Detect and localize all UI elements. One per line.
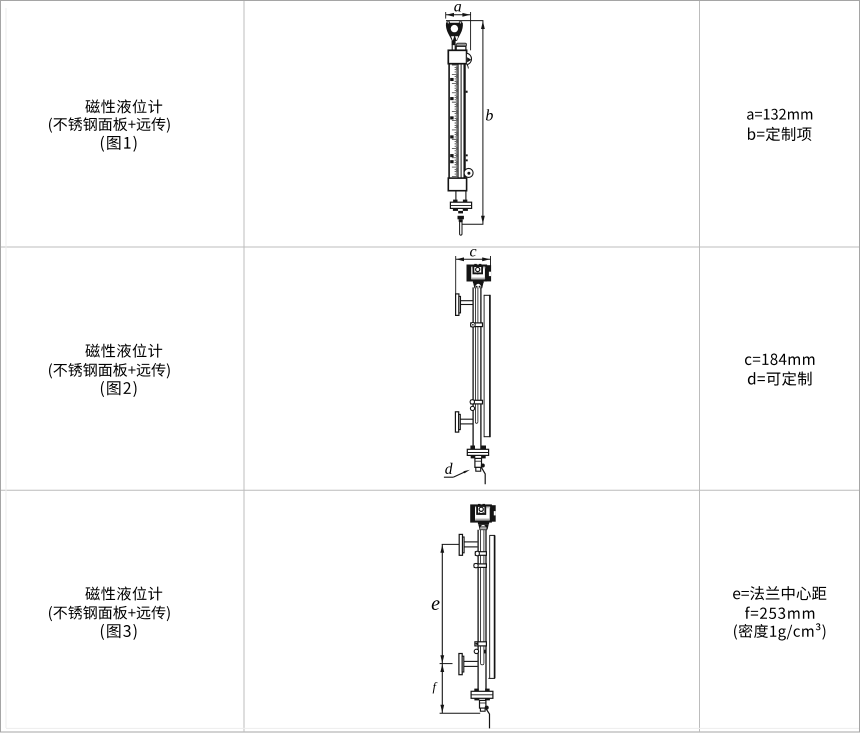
svg-text:c: c [470,244,477,261]
svg-text:f: f [432,680,437,694]
svg-text:b: b [485,108,493,125]
svg-text:e: e [431,593,440,615]
svg-text:d: d [445,461,453,478]
svg-text:a: a [454,0,462,16]
